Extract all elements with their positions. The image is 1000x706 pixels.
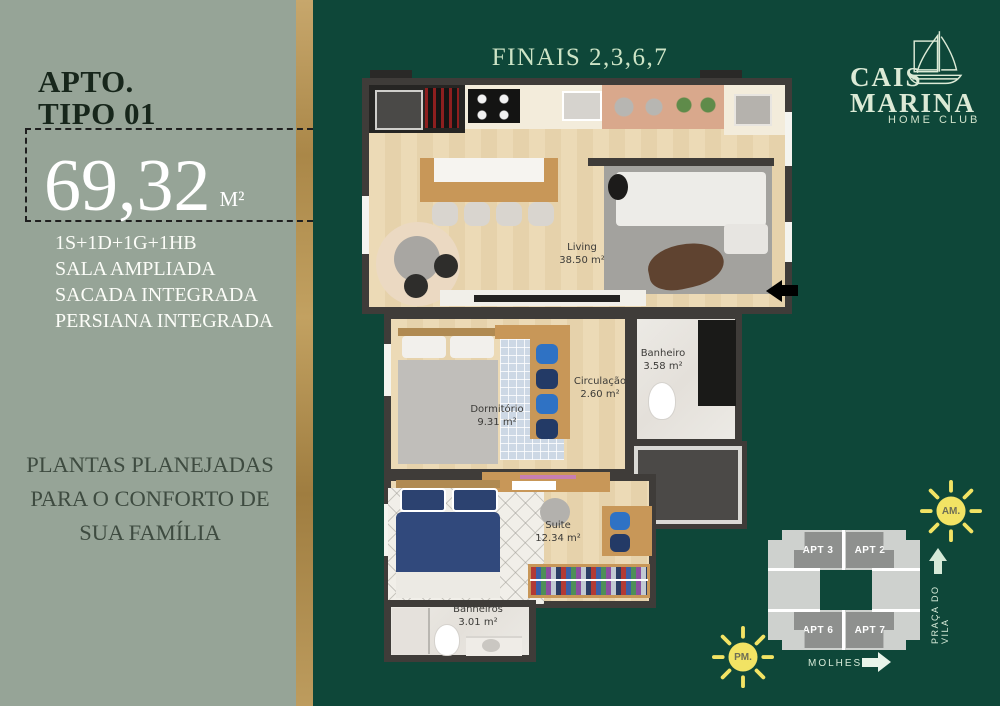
room-label-suite: Suite 12.34 m²: [508, 520, 608, 545]
counter-pink-section: [602, 85, 724, 129]
kitchen-sink: [562, 91, 602, 121]
footprint-notch: [906, 640, 920, 650]
unit-divider: [768, 568, 820, 571]
room-area: 12.34 m²: [508, 533, 608, 546]
oven-appliance: [375, 90, 423, 130]
pm-sun-label: PM.: [712, 626, 774, 688]
tv: [474, 295, 620, 302]
site-key-plan: APT 3 APT 2 APT 6 APT 7: [768, 530, 920, 650]
north-arrow-shaft: [934, 560, 942, 574]
room-label-living: Living 38.50 m²: [537, 242, 627, 267]
suite-headboard: [396, 480, 500, 488]
apartment-title: APTO. TIPO 01: [38, 66, 156, 129]
lounge-chair: [404, 274, 428, 298]
lounge-chair: [434, 254, 458, 278]
unit-divider: [872, 609, 920, 612]
sofa-back-wall: [588, 158, 774, 166]
second-sink: [734, 94, 772, 126]
wine-rack: [425, 88, 459, 128]
dining-chair: [432, 202, 458, 226]
suite-bed-foot: [396, 572, 500, 598]
am-sun-icon: AM.: [920, 480, 982, 542]
unit-apt3-label: APT 3: [803, 545, 834, 556]
side-table: [608, 174, 628, 200]
room-name: Banheiro: [618, 348, 708, 361]
area-unit: M²: [220, 187, 245, 212]
gold-divider-strip: [296, 0, 313, 706]
floor-plan: Living 38.50 m² Dormitório 9.31 m² Circu…: [362, 76, 798, 668]
feature-item: PERSIANA INTEGRADA: [55, 309, 273, 334]
praca-do-vila-label: PRAÇA DO VILA: [930, 580, 950, 644]
molhes-arrow-shaft: [862, 658, 878, 667]
dining-chair: [464, 202, 490, 226]
area-figure: 69,32 M²: [44, 126, 294, 220]
molhes-arrow-icon: [878, 652, 891, 672]
tagline: PLANTAS PLANEJADAS PARA O CONFORTO DE SU…: [14, 448, 286, 550]
footprint-notch: [768, 530, 782, 540]
dining-chair: [528, 202, 554, 226]
room-label-banheiros: Banheiros 3.01 m²: [428, 604, 528, 629]
am-sun-label: AM.: [920, 480, 982, 542]
feature-item: SALA AMPLIADA: [55, 257, 273, 282]
courtyard-hole: [820, 570, 872, 610]
unit-apt6-label: APT 6: [803, 625, 834, 636]
room-name: Suite: [508, 520, 608, 533]
unit-divider: [842, 530, 845, 570]
wardrobe-rail: [530, 579, 648, 581]
island-marble-top: [434, 158, 544, 182]
vanity-tray: [512, 481, 556, 490]
suite-chair: [610, 534, 630, 552]
unit-divider: [842, 610, 845, 650]
sofa: [616, 172, 766, 226]
pillow: [450, 336, 494, 358]
unit-divider: [872, 568, 920, 571]
desk: [495, 325, 570, 339]
pillow-navy: [452, 488, 498, 512]
unit-apt6: APT 6: [794, 612, 842, 648]
molhes-label: MOLHES: [808, 658, 862, 669]
unit-apt7: APT 7: [846, 612, 894, 648]
unit-apt2: APT 2: [846, 532, 894, 568]
finais-heading: FINAIS 2,3,6,7: [420, 44, 740, 72]
page: APTO. TIPO 01 69,32 M² 1S+1D+1G+1HB SALA…: [0, 0, 1000, 706]
room-area: 3.01 m²: [428, 617, 528, 630]
suite-bed-duvet: [396, 512, 500, 574]
balcony-door-segment: [785, 222, 792, 262]
office-chair: [536, 344, 558, 364]
room-name: Banheiros: [428, 604, 528, 617]
room-area: 9.31 m²: [442, 417, 552, 430]
suite-chair: [610, 512, 630, 530]
room-area: 3.58 m²: [618, 361, 708, 374]
cooktop: [468, 89, 520, 123]
wardrobe-clothes-rack: [528, 564, 650, 598]
feature-item: 1S+1D+1G+1HB: [55, 231, 273, 256]
window-segment: [785, 112, 792, 166]
shower-stall: [392, 608, 430, 654]
vanity-items: [520, 475, 576, 479]
pillow-navy: [400, 488, 446, 512]
apartment-title-line2: TIPO 01: [38, 98, 156, 130]
room-name: Living: [537, 242, 627, 255]
unit-apt3: APT 3: [794, 532, 842, 568]
basin: [482, 639, 500, 652]
unit-apt7-label: APT 7: [855, 625, 886, 636]
dining-chair: [496, 202, 522, 226]
pillow: [402, 336, 446, 358]
footprint-notch: [906, 530, 920, 540]
logo-homeclub: HOME CLUB: [888, 114, 980, 126]
entry-arrow-shaft: [780, 285, 798, 296]
apartment-title-line1: APTO.: [38, 66, 156, 98]
unit-apt2-label: APT 2: [855, 545, 886, 556]
room-name: Dormitório: [442, 404, 552, 417]
pm-sun-icon: PM.: [712, 626, 774, 688]
room-label-banheiro: Banheiro 3.58 m²: [618, 348, 708, 373]
window-segment: [384, 344, 391, 396]
window-segment: [362, 196, 369, 254]
toilet: [648, 382, 676, 420]
feature-item: SACADA INTEGRADA: [55, 283, 273, 308]
area-value: 69,32: [44, 152, 211, 220]
bed-headboard: [398, 328, 498, 336]
room-area: 38.50 m²: [537, 255, 627, 268]
feature-list: 1S+1D+1G+1HB SALA AMPLIADA SACADA INTEGR…: [55, 231, 273, 335]
unit-divider: [768, 609, 820, 612]
room-label-dormitorio: Dormitório 9.31 m²: [442, 404, 552, 429]
sofa-chaise: [724, 224, 768, 254]
